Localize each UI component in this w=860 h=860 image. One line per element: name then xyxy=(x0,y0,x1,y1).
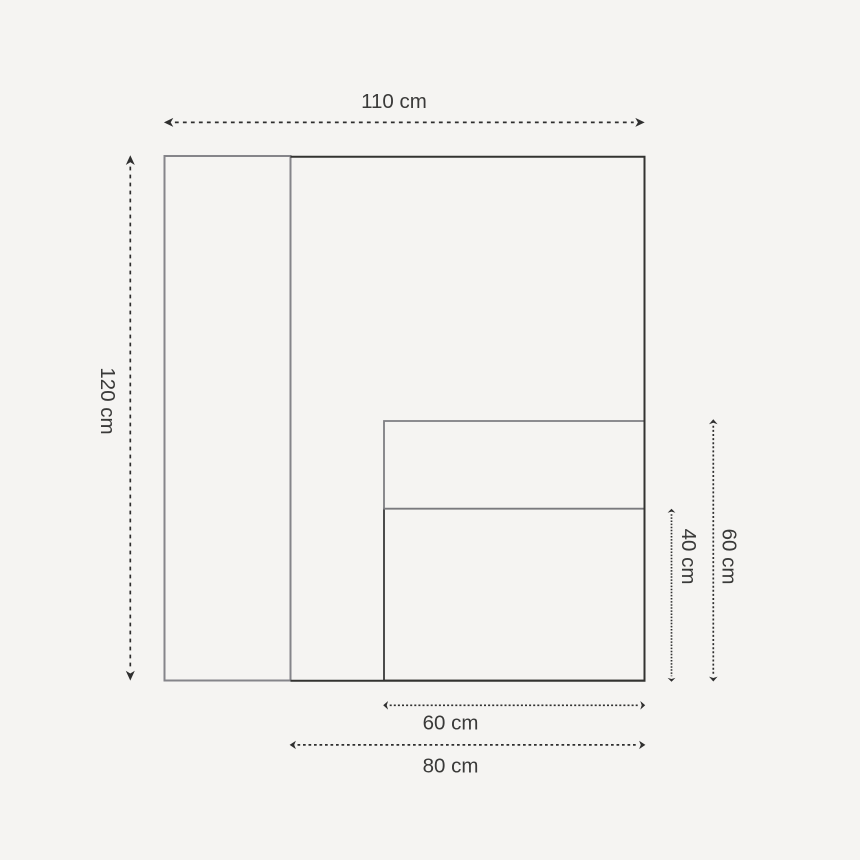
svg-text:120 cm: 120 cm xyxy=(96,367,119,434)
svg-text:40 cm: 40 cm xyxy=(677,529,700,585)
svg-text:80 cm: 80 cm xyxy=(423,755,479,778)
svg-text:110 cm: 110 cm xyxy=(361,90,427,113)
svg-text:60 cm: 60 cm xyxy=(423,712,479,735)
svg-text:60 cm: 60 cm xyxy=(718,529,741,585)
